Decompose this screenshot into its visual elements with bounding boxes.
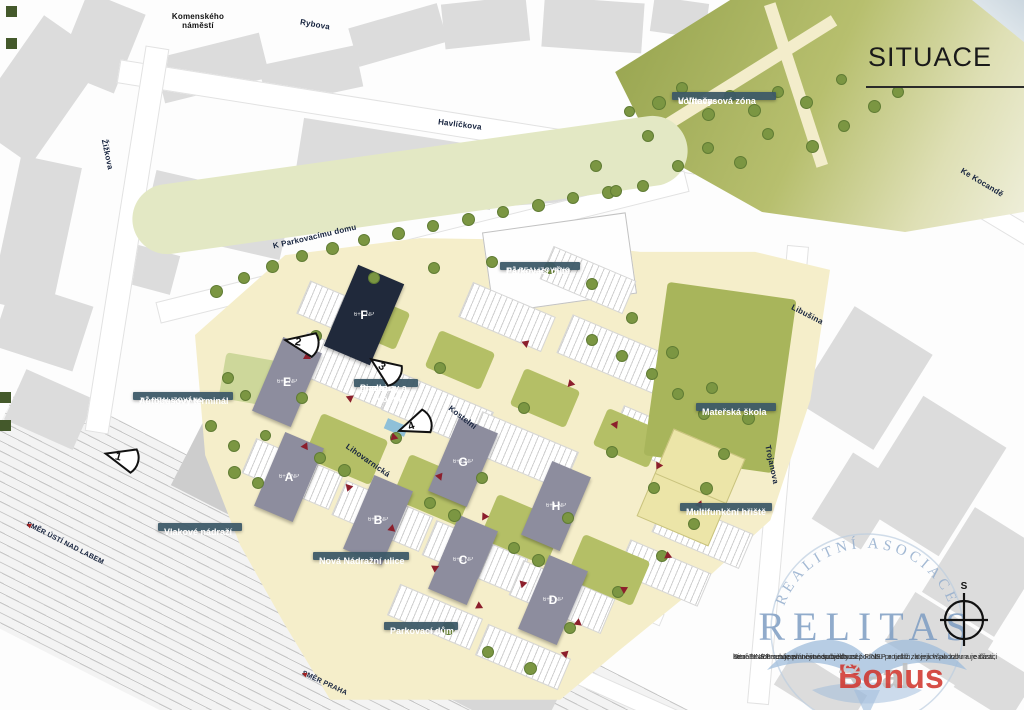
view-marker-2: 2 <box>281 325 324 361</box>
entrance-marker-icon <box>610 420 618 429</box>
entrance-marker-icon <box>435 473 445 482</box>
entrance-marker-icon <box>346 392 356 403</box>
callout-materska-skola: Mateřská škola <box>696 403 776 411</box>
entrance-marker-icon <box>479 512 489 522</box>
callout-multifunkcni-hriste: Multifunkční hřiště <box>680 503 772 511</box>
callout-parkovaci-dum: Parkovací dům <box>384 622 458 630</box>
callout-parkovaci-dum-realizovano: Parkovací důmJIŽ REALIZOVÁNO <box>500 262 580 270</box>
callout-vlakove-nadrazi: Vlakové nádraží <box>158 523 242 531</box>
entrance-marker-icon <box>431 562 441 572</box>
entrance-marker-icon <box>520 579 529 589</box>
entrance-marker-icon <box>565 379 576 390</box>
callout-volnocasova-zona: Volnočasová zónau Vltavy <box>672 92 776 100</box>
entrance-marker-icon <box>387 523 396 531</box>
entrance-marker-icon <box>662 551 672 562</box>
svg-text:S: S <box>961 581 968 592</box>
callout-nova-nadrazni-ulice: Nová Nádražní ulice <box>313 552 409 560</box>
svg-text:REALITNÍ ASOCIACE: REALITNÍ ASOCIACE <box>773 535 961 608</box>
title-underline <box>866 86 1024 88</box>
entrance-marker-icon <box>300 442 308 451</box>
entrance-marker-icon <box>521 340 530 348</box>
entrance-marker-icon <box>559 649 568 659</box>
site-plan-map: A6+1 NP B6+1 NP C6+1 NP D6+1 NP E6+1 NP … <box>0 0 1024 710</box>
street-komenskeho-namesti: Komenského náměstí <box>158 12 238 30</box>
entrance-marker-icon <box>620 587 628 594</box>
entrance-marker-icon <box>653 459 663 469</box>
page-title: SITUACE <box>868 42 992 73</box>
entrance-marker-icon <box>475 601 485 611</box>
callout-autobusovy-terminal: Autobusový terminálJIŽ REALIZOVÁNO <box>133 392 233 400</box>
entrance-marker-icon <box>574 618 584 629</box>
compass-icon: S <box>938 578 990 648</box>
entrance-marker-icon <box>343 481 354 492</box>
